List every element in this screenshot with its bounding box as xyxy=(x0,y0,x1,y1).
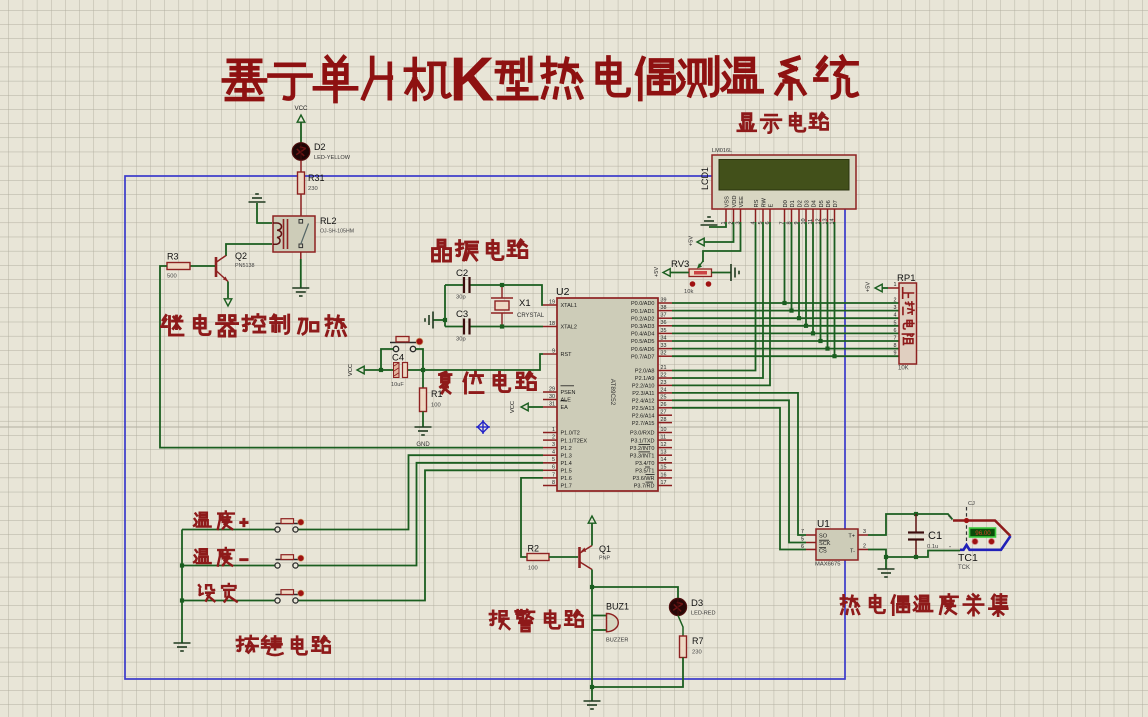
svg-text:U2: U2 xyxy=(556,286,570,298)
svg-text:2: 2 xyxy=(552,435,555,441)
svg-text:LCD1: LCD1 xyxy=(700,167,710,190)
svg-text:PSEN: PSEN xyxy=(561,390,576,396)
svg-text:VEE: VEE xyxy=(739,196,745,208)
svg-text:D5: D5 xyxy=(819,200,825,207)
svg-text:D2: D2 xyxy=(797,200,803,207)
svg-text:P0.2/AD2: P0.2/AD2 xyxy=(631,316,655,322)
svg-text:1: 1 xyxy=(552,427,555,433)
svg-text:8: 8 xyxy=(894,343,897,349)
svg-text:P3.6/WR: P3.6/WR xyxy=(632,476,654,482)
svg-text:23: 23 xyxy=(661,380,667,386)
svg-text:2: 2 xyxy=(894,298,897,304)
svg-text:P0.6/AD6: P0.6/AD6 xyxy=(631,347,655,353)
svg-text:D0: D0 xyxy=(783,200,789,207)
svg-text:7: 7 xyxy=(894,336,897,342)
svg-text:P1.4: P1.4 xyxy=(561,461,572,467)
svg-text:15: 15 xyxy=(661,465,667,471)
svg-text:100: 100 xyxy=(431,403,441,409)
svg-text:30p: 30p xyxy=(456,337,466,343)
svg-text:SO: SO xyxy=(819,534,828,540)
svg-text:D1: D1 xyxy=(790,200,796,207)
svg-text:3: 3 xyxy=(894,305,897,311)
svg-text:C3: C3 xyxy=(456,309,468,320)
svg-text:3: 3 xyxy=(552,442,555,448)
svg-text:BUZ1: BUZ1 xyxy=(606,602,629,612)
svg-text:10uF: 10uF xyxy=(391,382,404,388)
svg-text:R2: R2 xyxy=(528,544,540,554)
svg-text:AT89C52: AT89C52 xyxy=(609,379,616,406)
svg-text:+5V: +5V xyxy=(689,236,695,246)
svg-text:P0.3/AD3: P0.3/AD3 xyxy=(631,324,655,330)
svg-text:X1: X1 xyxy=(519,298,531,309)
svg-text:VSS: VSS xyxy=(724,196,730,208)
svg-text:T-: T- xyxy=(850,549,855,555)
svg-text:Q2: Q2 xyxy=(235,251,247,261)
svg-text:29: 29 xyxy=(549,386,555,392)
svg-text:0.1u: 0.1u xyxy=(927,544,938,550)
svg-text:VCC: VCC xyxy=(510,401,516,413)
svg-text:7: 7 xyxy=(552,472,555,478)
svg-text:P2.0/A8: P2.0/A8 xyxy=(635,369,655,375)
svg-text:9: 9 xyxy=(552,348,555,354)
svg-text:14: 14 xyxy=(661,457,667,463)
svg-text:Q1: Q1 xyxy=(599,544,611,554)
svg-text:D6: D6 xyxy=(826,200,832,207)
svg-text:230: 230 xyxy=(308,186,318,192)
svg-text:LM016L: LM016L xyxy=(712,148,732,154)
svg-text:21: 21 xyxy=(661,365,667,371)
svg-text:P1.5: P1.5 xyxy=(561,469,572,475)
svg-text:RST: RST xyxy=(561,352,573,358)
svg-text:RV3: RV3 xyxy=(671,259,689,270)
svg-text:38: 38 xyxy=(661,305,667,311)
svg-text:VCC: VCC xyxy=(294,105,308,112)
svg-text:31: 31 xyxy=(549,401,555,407)
svg-text:P3.0/RXD: P3.0/RXD xyxy=(630,431,654,437)
svg-text:EA: EA xyxy=(561,405,569,411)
svg-text:10k: 10k xyxy=(684,289,693,295)
svg-text:MAX6675: MAX6675 xyxy=(815,562,840,568)
svg-text:230: 230 xyxy=(692,650,702,656)
svg-text:P2.1/A9: P2.1/A9 xyxy=(635,376,655,382)
svg-text:17: 17 xyxy=(661,480,667,486)
svg-text:P1.1/T2EX: P1.1/T2EX xyxy=(561,438,588,444)
svg-text:2: 2 xyxy=(863,544,866,550)
svg-text:D3: D3 xyxy=(691,598,703,609)
svg-text:3: 3 xyxy=(863,529,866,535)
svg-text:P1.0/T2: P1.0/T2 xyxy=(561,431,580,437)
svg-text:8: 8 xyxy=(552,480,555,486)
svg-text:T+: T+ xyxy=(848,534,855,540)
svg-text:+: + xyxy=(948,515,952,521)
svg-text:D4: D4 xyxy=(811,200,817,207)
svg-text:GND: GND xyxy=(416,442,430,448)
svg-text:P1.3: P1.3 xyxy=(561,453,572,459)
svg-text:RW: RW xyxy=(761,197,767,207)
svg-text:P2.4/A12: P2.4/A12 xyxy=(632,399,655,405)
svg-text:100: 100 xyxy=(528,566,538,572)
svg-text:7: 7 xyxy=(801,529,804,535)
svg-text:5: 5 xyxy=(894,320,897,326)
svg-text:19: 19 xyxy=(549,299,555,305)
svg-text:22: 22 xyxy=(661,372,667,378)
svg-text:XTAL1: XTAL1 xyxy=(561,303,577,309)
svg-text:LED-YELLOW: LED-YELLOW xyxy=(314,155,351,161)
svg-text:OJ-SH-105HM: OJ-SH-105HM xyxy=(320,229,354,235)
svg-text:P2.3/A11: P2.3/A11 xyxy=(632,391,654,397)
svg-text:96.00: 96.00 xyxy=(975,530,991,537)
svg-text:TC1: TC1 xyxy=(958,552,978,564)
svg-text:11: 11 xyxy=(661,435,667,441)
svg-text:+5V: +5V xyxy=(866,282,872,292)
svg-text:PNP: PNP xyxy=(599,556,610,562)
svg-text:P0.0/AD0: P0.0/AD0 xyxy=(631,301,655,307)
svg-text:33: 33 xyxy=(661,343,667,349)
svg-text:P1.2: P1.2 xyxy=(561,446,572,452)
svg-text:RS: RS xyxy=(754,199,760,207)
svg-text:39: 39 xyxy=(661,297,667,303)
svg-text:500: 500 xyxy=(167,274,177,280)
svg-text:34: 34 xyxy=(661,335,667,341)
svg-text:27: 27 xyxy=(661,410,667,416)
svg-text:10: 10 xyxy=(661,427,667,433)
svg-text:5: 5 xyxy=(801,537,804,543)
svg-text:D3: D3 xyxy=(804,200,810,207)
svg-text:CRYSTAL: CRYSTAL xyxy=(517,313,545,319)
svg-text:CJ: CJ xyxy=(968,501,975,507)
svg-text:P0.7/AD7: P0.7/AD7 xyxy=(631,354,655,360)
svg-text:P3.1/TXD: P3.1/TXD xyxy=(631,438,655,444)
svg-text:35: 35 xyxy=(661,328,667,334)
svg-text:24: 24 xyxy=(661,387,667,393)
svg-text:37: 37 xyxy=(661,313,667,319)
svg-text:VCC: VCC xyxy=(348,364,354,376)
svg-text:R31: R31 xyxy=(308,173,325,183)
svg-text:18: 18 xyxy=(549,321,555,327)
svg-text:TCK: TCK xyxy=(958,565,970,571)
svg-text:10K: 10K xyxy=(898,366,909,372)
svg-text:VDD: VDD xyxy=(732,195,738,207)
svg-text:P2.2/A10: P2.2/A10 xyxy=(632,384,655,390)
svg-text:R3: R3 xyxy=(167,252,179,262)
svg-text:K: K xyxy=(450,46,495,115)
svg-text:P3.4/T0: P3.4/T0 xyxy=(635,461,654,467)
svg-text:U1: U1 xyxy=(817,519,830,530)
svg-text:6: 6 xyxy=(894,328,897,334)
svg-text:16: 16 xyxy=(661,472,667,478)
svg-text:P3.7/RD: P3.7/RD xyxy=(634,484,655,490)
svg-text:P2.5/A13: P2.5/A13 xyxy=(632,406,655,412)
svg-text:P3.3/INT1: P3.3/INT1 xyxy=(630,453,655,459)
svg-text:6: 6 xyxy=(801,544,804,550)
svg-text:D7: D7 xyxy=(833,200,839,207)
svg-text:5: 5 xyxy=(552,457,555,463)
svg-text:30p: 30p xyxy=(456,295,466,301)
svg-text:D2: D2 xyxy=(314,142,326,152)
svg-text:1: 1 xyxy=(894,282,897,288)
svg-text:P2.6/A14: P2.6/A14 xyxy=(632,413,655,419)
svg-text:+5V: +5V xyxy=(654,267,660,277)
svg-text:9: 9 xyxy=(894,351,897,357)
svg-text:P3.5/T1: P3.5/T1 xyxy=(635,469,654,475)
svg-text:13: 13 xyxy=(661,450,667,456)
svg-text:C4: C4 xyxy=(392,353,404,364)
svg-text:P1.7: P1.7 xyxy=(561,484,572,490)
svg-text:30: 30 xyxy=(549,394,555,400)
svg-text:BUZZER: BUZZER xyxy=(606,638,628,644)
svg-text:R7: R7 xyxy=(692,636,704,646)
svg-text:12: 12 xyxy=(661,442,667,448)
svg-text:32: 32 xyxy=(661,351,667,357)
svg-text:P0.4/AD4: P0.4/AD4 xyxy=(631,332,655,338)
svg-text:C1: C1 xyxy=(928,530,942,542)
svg-text:4: 4 xyxy=(552,450,555,456)
svg-text:P1.6: P1.6 xyxy=(561,476,572,482)
svg-text:R1: R1 xyxy=(431,389,443,399)
svg-text:28: 28 xyxy=(661,417,667,423)
svg-text:25: 25 xyxy=(661,395,667,401)
svg-text:C2: C2 xyxy=(456,268,468,279)
svg-text:SCK: SCK xyxy=(819,541,831,547)
svg-text:6: 6 xyxy=(552,465,555,471)
svg-text:26: 26 xyxy=(661,402,667,408)
svg-text:PN5138: PN5138 xyxy=(235,263,254,269)
svg-text:P2.7/A15: P2.7/A15 xyxy=(632,421,655,427)
svg-text:RL2: RL2 xyxy=(320,216,337,226)
svg-text:36: 36 xyxy=(661,320,667,326)
svg-text:E: E xyxy=(768,204,774,208)
svg-text:CS: CS xyxy=(819,549,827,555)
svg-text:LED-RED: LED-RED xyxy=(691,611,716,617)
svg-text:P0.1/AD1: P0.1/AD1 xyxy=(631,309,655,315)
svg-text:RP1: RP1 xyxy=(897,273,915,284)
svg-text:P3.2/INT0: P3.2/INT0 xyxy=(630,446,655,452)
svg-text:P0.5/AD5: P0.5/AD5 xyxy=(631,339,655,345)
svg-text:XTAL2: XTAL2 xyxy=(561,325,577,331)
svg-text:4: 4 xyxy=(894,313,897,319)
